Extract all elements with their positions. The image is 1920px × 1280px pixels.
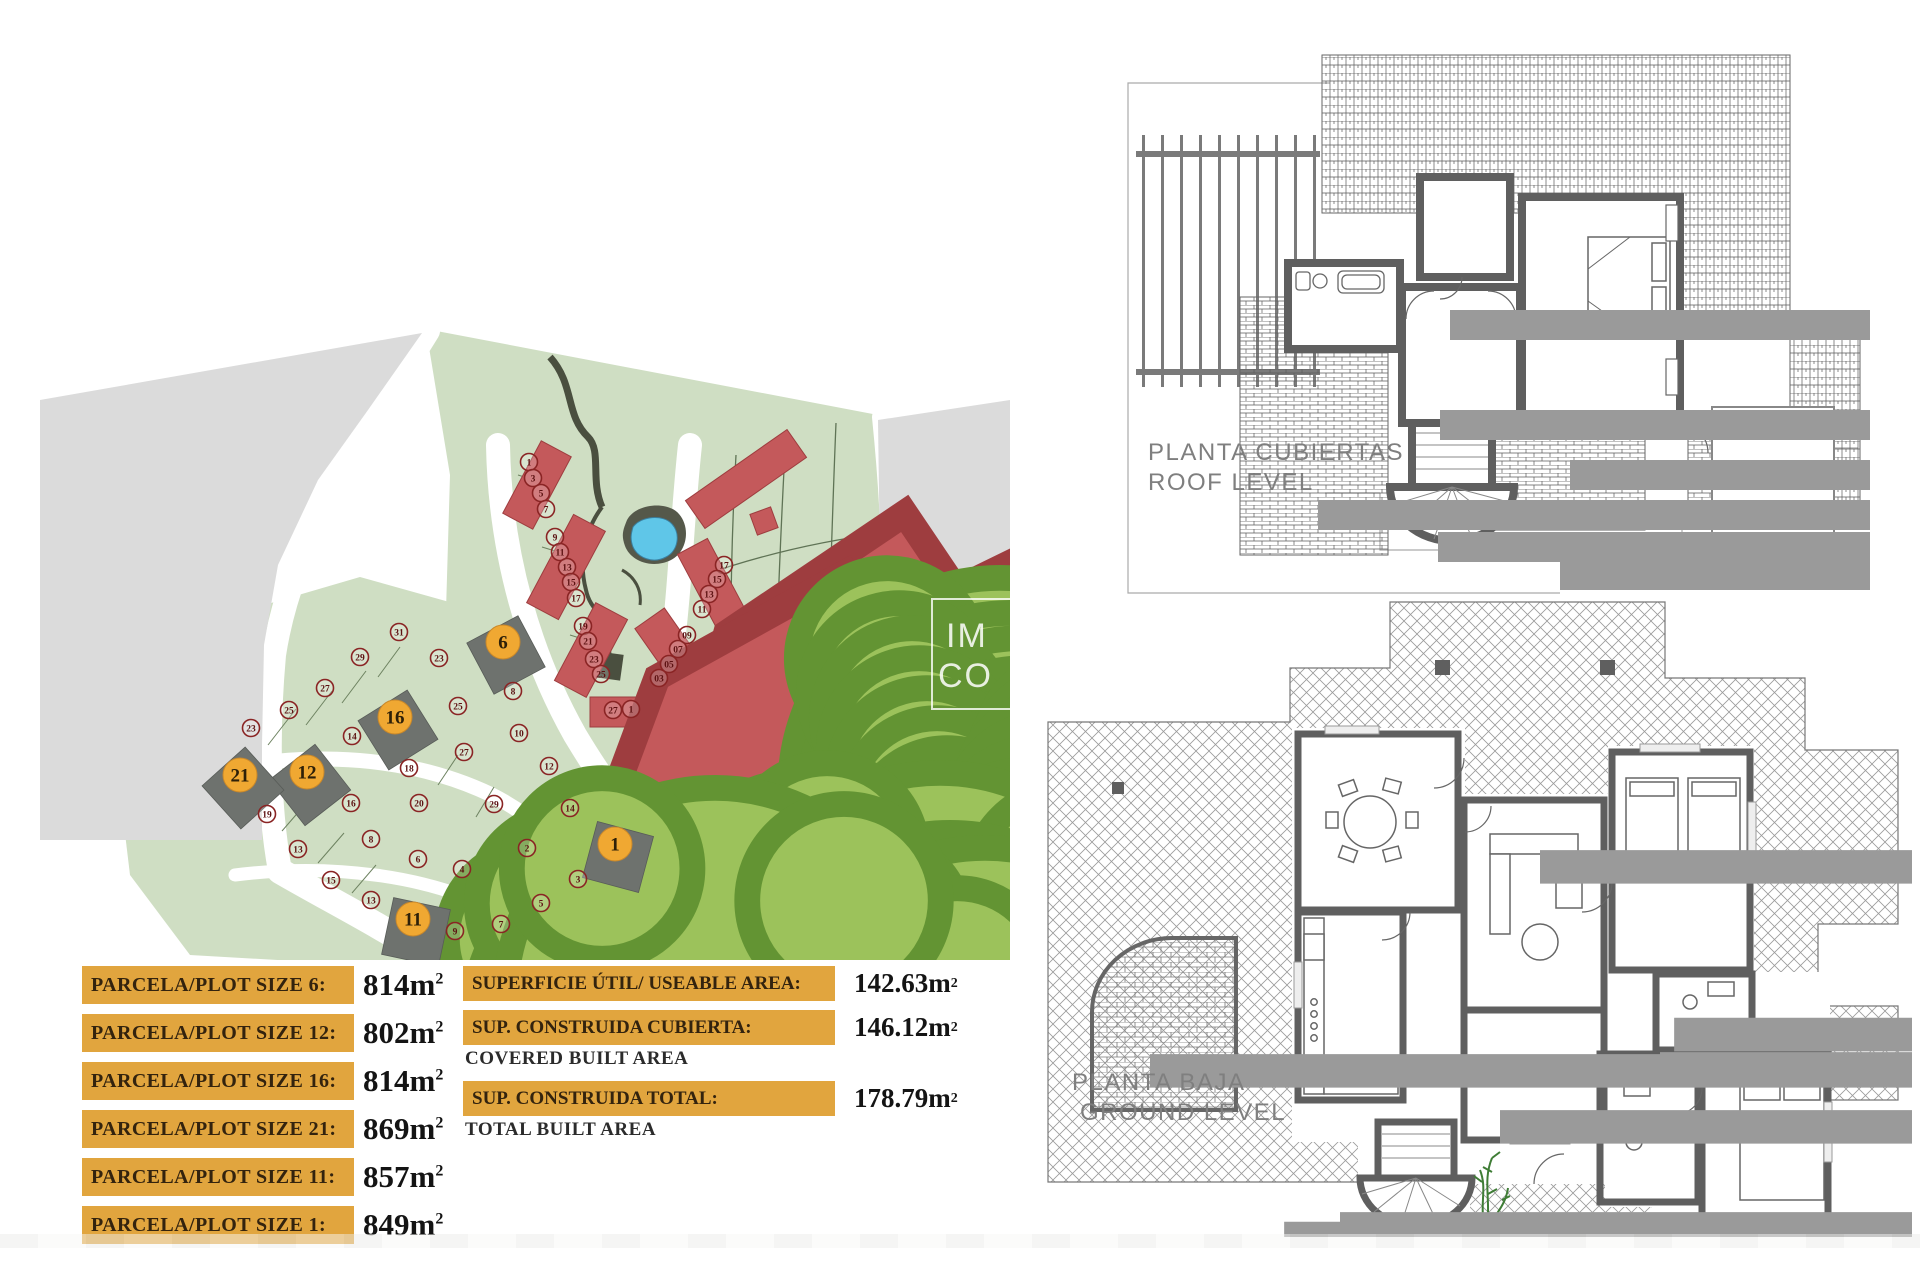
table-row: SUP. CONSTRUIDA CUBIERTA: 146.12m2 COVER…: [463, 1010, 963, 1072]
svg-text:9: 9: [453, 927, 458, 937]
table-row: PARCELA/PLOT SIZE 11: 857m2: [82, 1158, 502, 1196]
plot-number-marker: 9: [447, 923, 464, 940]
plot-number-marker: 27: [456, 744, 473, 761]
svg-text:6: 6: [498, 633, 508, 654]
svg-text:1: 1: [527, 458, 532, 468]
ground-level-plan: PLANTA BAJA GROUND LEVEL: [1040, 582, 1912, 1237]
area-value: 142.63m2: [844, 966, 963, 1001]
area-sublabel: COVERED BUILT AREA: [463, 1045, 963, 1072]
roof-plan-title-en: ROOF LEVEL: [1148, 469, 1314, 496]
plot-number-marker: 25: [450, 698, 467, 715]
plot-number-marker: 23: [243, 720, 260, 737]
svg-text:14: 14: [347, 732, 357, 742]
plot-number-marker: 31: [391, 624, 408, 641]
svg-text:4: 4: [460, 865, 465, 875]
svg-text:05: 05: [664, 660, 674, 670]
svg-text:23: 23: [434, 654, 444, 664]
ground-plan-title-es: PLANTA BAJA: [1072, 1069, 1245, 1096]
plot-number-marker: 03: [651, 670, 668, 687]
table-row: PARCELA/PLOT SIZE 12: 802m2: [82, 1014, 502, 1052]
table-row: SUP. CONSTRUIDA TOTAL: 178.79m2 TOTAL BU…: [463, 1081, 963, 1143]
plot-size-label: PARCELA/PLOT SIZE 11:: [82, 1158, 354, 1196]
svg-text:13: 13: [704, 590, 714, 600]
svg-text:21: 21: [231, 766, 250, 787]
plot-number-marker: 17: [568, 590, 585, 607]
plot-number-marker: 14: [562, 800, 579, 817]
svg-text:31: 31: [394, 628, 404, 638]
plot-number-marker: 29: [486, 796, 503, 813]
plot-number-marker: 27: [605, 702, 622, 719]
area-label: SUP. CONSTRUIDA TOTAL:: [463, 1081, 835, 1116]
plot-number-marker: 5: [533, 485, 550, 502]
plot-number-marker: 1: [521, 454, 538, 471]
svg-text:23: 23: [246, 724, 256, 734]
plot-number-marker: 18: [401, 760, 418, 777]
svg-text:2: 2: [525, 844, 530, 854]
svg-text:07: 07: [673, 645, 683, 655]
svg-text:27: 27: [608, 706, 618, 716]
plot-number-marker: 15: [563, 574, 580, 591]
svg-text:21: 21: [583, 637, 593, 647]
svg-text:19: 19: [262, 810, 272, 820]
svg-text:17: 17: [719, 561, 729, 571]
svg-text:7: 7: [499, 920, 504, 930]
plot-number-marker: 14: [344, 728, 361, 745]
watermark-line2: CO: [938, 657, 993, 695]
brochure-page: 6161221111 13579111315171921232527117151…: [0, 0, 1920, 1280]
svg-text:11: 11: [698, 605, 707, 615]
built-area-table: SUPERFICIE ÚTIL/ USEABLE AREA: 142.63m2 …: [463, 966, 963, 1152]
svg-text:8: 8: [511, 687, 516, 697]
svg-text:03: 03: [654, 674, 664, 684]
svg-text:23: 23: [589, 655, 599, 665]
watermark-line1: IM: [946, 617, 988, 655]
ground-plan-title-en: GROUND LEVEL: [1080, 1099, 1286, 1126]
svg-text:12: 12: [298, 763, 317, 784]
svg-text:3: 3: [531, 474, 536, 484]
svg-text:16: 16: [386, 708, 405, 729]
svg-text:19: 19: [578, 622, 588, 632]
plot-number-marker: 19: [259, 806, 276, 823]
plot-number-marker: 15: [323, 872, 340, 889]
plot-number-marker: 25: [593, 666, 610, 683]
plot-number-marker: 4: [454, 861, 471, 878]
plot-size-value: 802m2: [363, 1015, 443, 1051]
plot-number-marker: 25: [281, 702, 298, 719]
svg-text:5: 5: [539, 489, 544, 499]
svg-text:11: 11: [404, 910, 422, 931]
plot-number-marker: 13: [363, 892, 380, 909]
plot-number-marker: 12: [541, 758, 558, 775]
plot-number-marker: 1: [623, 701, 640, 718]
plot-size-label: PARCELA/PLOT SIZE 21:: [82, 1110, 354, 1148]
area-label: SUP. CONSTRUIDA CUBIERTA:: [463, 1010, 835, 1045]
plot-number-marker: 5: [533, 895, 550, 912]
svg-text:7: 7: [544, 505, 549, 515]
plot-number-marker: 23: [431, 650, 448, 667]
svg-text:11: 11: [556, 548, 565, 558]
hallway: [1402, 287, 1520, 423]
plot-number-marker: 8: [363, 831, 380, 848]
plot-number-marker: 13: [290, 841, 307, 858]
plot-size-label: PARCELA/PLOT SIZE 6:: [82, 966, 354, 1004]
svg-text:29: 29: [355, 653, 365, 663]
plot-size-value: 869m2: [363, 1111, 443, 1147]
page-edge-artifact: [0, 1234, 1920, 1248]
svg-text:6: 6: [416, 855, 421, 865]
svg-text:13: 13: [562, 563, 572, 573]
svg-text:18: 18: [404, 764, 414, 774]
svg-text:5: 5: [539, 899, 544, 909]
area-label: SUPERFICIE ÚTIL/ USEABLE AREA:: [463, 966, 835, 1001]
svg-text:12: 12: [544, 762, 554, 772]
plot-number-marker: 8: [505, 683, 522, 700]
svg-text:20: 20: [414, 799, 424, 809]
table-row: PARCELA/PLOT SIZE 6: 814m2: [82, 966, 502, 1004]
area-value: 178.79m2: [844, 1081, 963, 1116]
svg-text:15: 15: [566, 578, 576, 588]
svg-text:13: 13: [293, 845, 303, 855]
svg-text:25: 25: [284, 706, 294, 716]
plot-number-marker: 21: [580, 633, 597, 650]
area-sublabel: TOTAL BUILT AREA: [463, 1116, 963, 1143]
svg-text:27: 27: [459, 748, 469, 758]
svg-text:17: 17: [571, 594, 581, 604]
plot-size-label: PARCELA/PLOT SIZE 16:: [82, 1062, 354, 1100]
plot-number-marker: 29: [352, 649, 369, 666]
svg-text:14: 14: [565, 804, 575, 814]
plot-number-marker: 2: [519, 840, 536, 857]
area-value: 146.12m2: [844, 1010, 963, 1045]
plot-size-value: 857m2: [363, 1159, 443, 1195]
svg-text:8: 8: [369, 835, 374, 845]
plot-number-marker: 7: [493, 916, 510, 933]
plot-number-marker: 20: [411, 795, 428, 812]
bath-fixtures: [1296, 271, 1384, 293]
storage-room: [1420, 177, 1510, 277]
plot-size-label: PARCELA/PLOT SIZE 12:: [82, 1014, 354, 1052]
svg-text:09: 09: [682, 631, 692, 641]
table-row: PARCELA/PLOT SIZE 16: 814m2: [82, 1062, 502, 1100]
plot-number-marker: 11: [694, 601, 711, 618]
svg-text:25: 25: [596, 670, 606, 680]
roof-plan-title-es: PLANTA CUBIERTAS: [1148, 439, 1404, 466]
svg-text:29: 29: [489, 800, 499, 810]
table-row: SUPERFICIE ÚTIL/ USEABLE AREA: 142.63m2: [463, 966, 963, 1001]
svg-text:15: 15: [712, 575, 722, 585]
svg-text:3: 3: [576, 875, 581, 885]
plot-number-marker: 3: [570, 871, 587, 888]
plot-size-value: 814m2: [363, 967, 443, 1003]
svg-text:16: 16: [346, 799, 356, 809]
plot-number-marker: 16: [343, 795, 360, 812]
svg-text:25: 25: [453, 702, 463, 712]
site-plan-map: 6161221111 13579111315171921232527117151…: [30, 315, 1010, 960]
svg-text:27: 27: [320, 684, 330, 694]
roof-level-plan: PLANTA CUBIERTAS ROOF LEVEL: [1090, 25, 1870, 605]
plot-size-table: PARCELA/PLOT SIZE 6: 814m2 PARCELA/PLOT …: [82, 966, 502, 1254]
plot-number-marker: 7: [538, 501, 555, 518]
staircase: [1360, 1122, 1472, 1226]
svg-text:1: 1: [629, 705, 634, 715]
svg-text:13: 13: [366, 896, 376, 906]
plot-number-marker: 6: [410, 851, 427, 868]
svg-text:15: 15: [326, 876, 336, 886]
plot-number-marker: 27: [317, 680, 334, 697]
plot-size-value: 814m2: [363, 1063, 443, 1099]
table-row: PARCELA/PLOT SIZE 21: 869m2: [82, 1110, 502, 1148]
svg-text:1: 1: [610, 835, 620, 856]
plot-number-marker: 07: [670, 641, 687, 658]
plot-number-marker: 10: [511, 725, 528, 742]
svg-text:10: 10: [514, 729, 524, 739]
svg-text:9: 9: [553, 533, 558, 543]
